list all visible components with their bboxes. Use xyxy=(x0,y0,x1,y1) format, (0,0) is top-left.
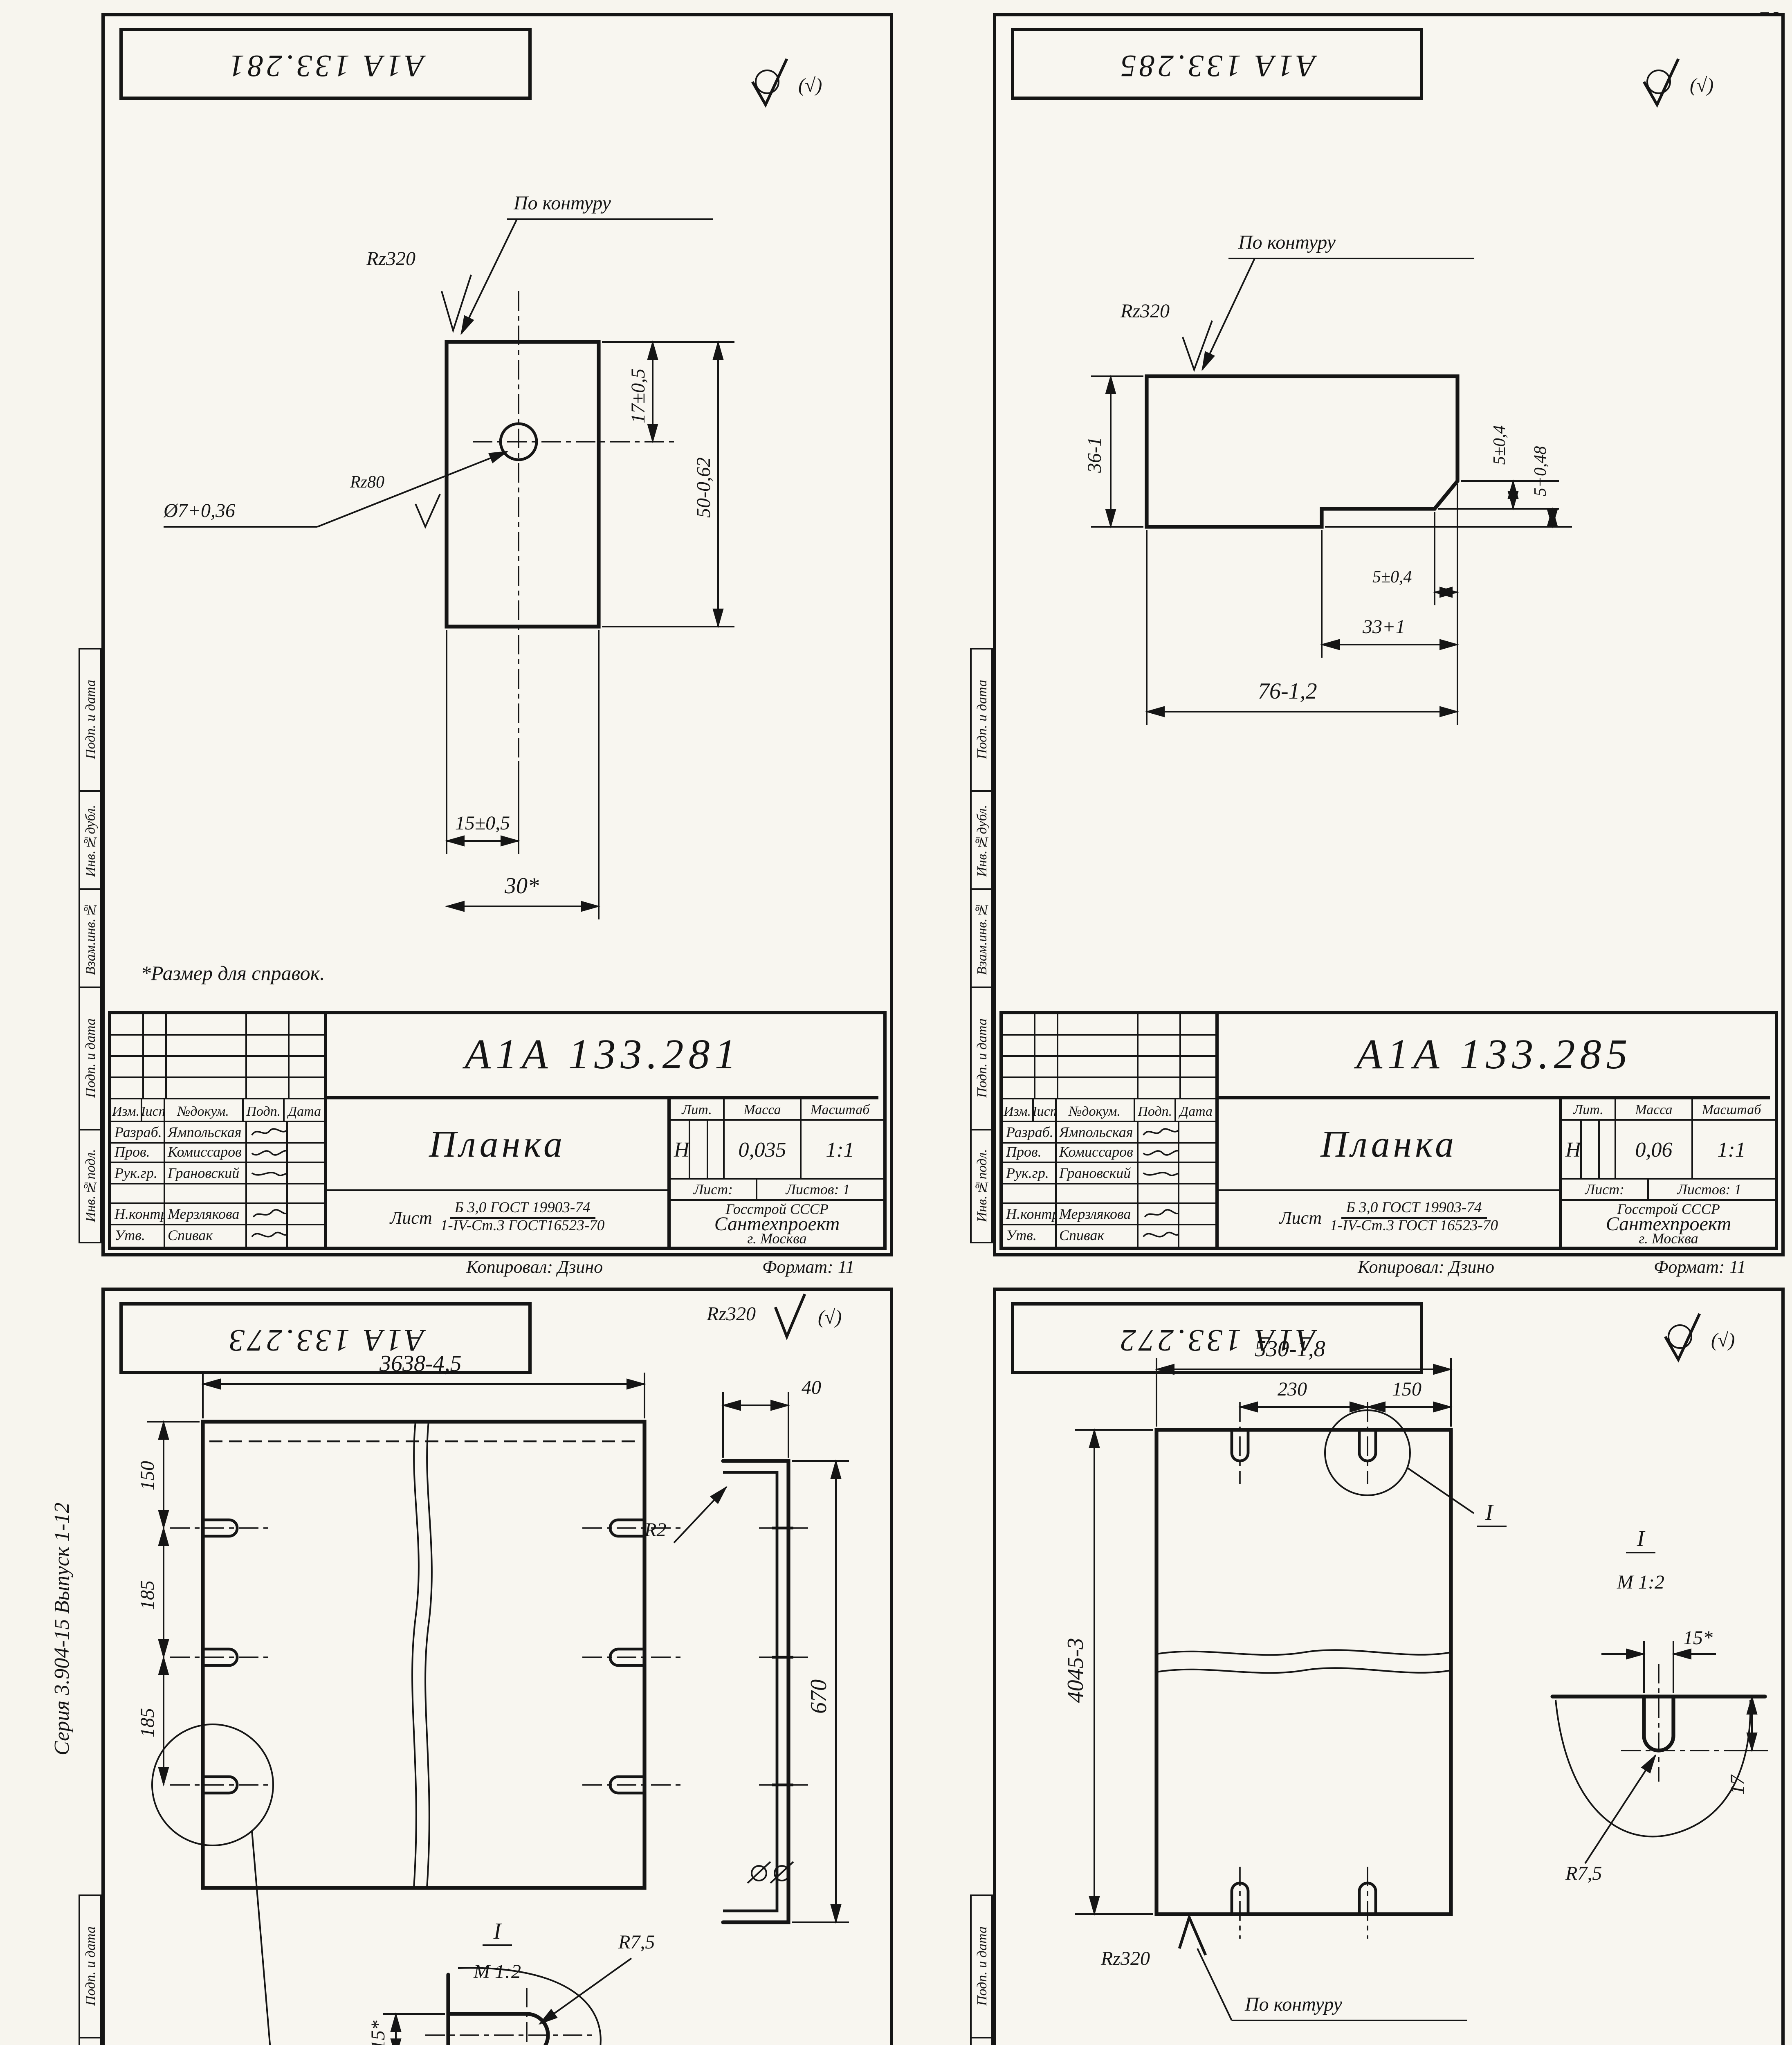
person-name: Комиссаров xyxy=(1056,1143,1138,1162)
margin-stamp-column: Подп. и дата Инв.№дубл. Взам.инв.№ Подп.… xyxy=(79,1898,101,2045)
side-view-channel xyxy=(723,1461,808,1922)
finish-paren-label: (√) xyxy=(798,74,822,96)
organization: Госстрой СССР Сантехпроект г. Москва xyxy=(671,1201,883,1245)
format-label: Формат: 11 xyxy=(1654,1258,1746,1278)
doc-number: А1А 133.281 xyxy=(327,1014,878,1099)
check-icon xyxy=(415,494,440,527)
role-label: Пров. xyxy=(1003,1143,1056,1162)
check-icon xyxy=(1183,321,1212,370)
revision-and-staff-table: Изм. Лист №докум. Подп. Дата Разраб.Ямпо… xyxy=(1003,1014,1219,1247)
signature xyxy=(1138,1205,1180,1224)
dim-5v-label: 5±0,4 xyxy=(1490,425,1509,465)
revision-grid xyxy=(1003,1014,1215,1099)
margin-cell: Инв.№дубл. xyxy=(970,790,993,891)
margin-cell: Взам.инв.№ xyxy=(970,888,993,990)
mass-value: 0,035 xyxy=(725,1121,802,1178)
org-line-2: Сантехпроект xyxy=(1562,1216,1775,1232)
drawing-view-planka-285: (√) По контуру Rz320 36-1 5±0,4 5+0,48 xyxy=(996,16,1780,1022)
organization: Госстрой СССР Сантехпроект г. Москва xyxy=(1562,1201,1775,1245)
break-line xyxy=(425,1422,432,1888)
plate-outline xyxy=(1147,376,1457,527)
margin-cell: Подп. и дата xyxy=(79,987,101,1131)
radius-r2-label: R2 xyxy=(644,1519,666,1541)
drawing-view-list-272: (√) 530-1,8 230 150 xyxy=(996,1291,1780,2045)
col-data: Дата xyxy=(1177,1099,1216,1121)
revision-and-staff-table: Изм. Лист №докум. Подп. Дата Разраб.Ямпо… xyxy=(111,1014,327,1247)
slots-left xyxy=(203,1520,237,1793)
margin-stamp-column: Подп. и дата Инв.№дубл. Взам.инв.№ Подп.… xyxy=(970,1898,993,2045)
dim-76-label: 76-1,2 xyxy=(1258,679,1317,704)
dim-15-label: 15* xyxy=(367,2020,389,2045)
dim-5n-label: 5+0,48 xyxy=(1531,446,1550,497)
dim-17-label: 17±0,5 xyxy=(627,369,649,423)
margin-cell: Инв.№дубл. xyxy=(79,790,101,891)
surface-finish-any-icon xyxy=(1665,1314,1700,1360)
role-label: Рук.гр. xyxy=(111,1164,164,1182)
slots-right xyxy=(610,1520,644,1793)
mass-header: Масса xyxy=(1616,1099,1693,1119)
scale-header: Масштаб xyxy=(1693,1099,1770,1119)
dim-3638-label: 3638-4,5 xyxy=(379,1351,462,1376)
break-line xyxy=(1156,1650,1451,1655)
mass-header: Масса xyxy=(725,1099,802,1119)
roughness-rz320-label: Rz320 xyxy=(706,1303,756,1325)
sheet-label: Лист: xyxy=(671,1180,757,1199)
material-prefix: Лист xyxy=(390,1209,432,1229)
series-label: Серия 3.904-15 Выпуск 1-12 xyxy=(46,1384,79,1875)
signature xyxy=(247,1122,289,1141)
margin-cell: Взам.инв.№ xyxy=(79,888,101,990)
margin-cell: Инв.№подл. xyxy=(970,1128,993,1243)
sheets-label: Листов: 1 xyxy=(1649,1180,1770,1199)
dim-30-label: 30* xyxy=(504,873,539,899)
person-name: Грановский xyxy=(164,1164,247,1182)
hole-dia-label: Ø7+0,36 xyxy=(163,500,235,521)
finish-paren-label: (√) xyxy=(1690,74,1713,96)
role-label: Разраб. xyxy=(111,1122,164,1141)
role-label: Утв. xyxy=(111,1225,164,1246)
dim-36-label: 36-1 xyxy=(1084,437,1105,473)
margin-stamp-column: Подп. и дата Инв.№дубл. Взам.инв.№ Подп.… xyxy=(79,651,101,1243)
roughness-rz320-label: Rz320 xyxy=(1120,300,1170,322)
org-line-2: Сантехпроект xyxy=(671,1216,883,1232)
margin-cell: Подп. и дата xyxy=(970,1895,993,2039)
drawing-view-dnishche-273: Rz320 (√) 3638-4,5 xyxy=(105,1291,888,2045)
revision-header-row: Изм. Лист №докум. Подп. Дата xyxy=(111,1099,324,1122)
lit-value: Н xyxy=(674,1136,689,1162)
margin-cell: Инв.№дубл. xyxy=(970,2036,993,2045)
col-podp: Подп. xyxy=(1135,1099,1177,1121)
doc-number: А1А 133.285 xyxy=(1219,1014,1770,1099)
role-label: Утв. xyxy=(1003,1225,1056,1246)
person-name: Грановский xyxy=(1056,1164,1138,1182)
col-list: Лист xyxy=(142,1099,164,1121)
dim-150-label: 150 xyxy=(1392,1378,1421,1400)
dim-33-label: 33+1 xyxy=(1362,616,1405,638)
reference-note: *Размер для справок. xyxy=(141,962,325,987)
roughness-rz320-label: Rz320 xyxy=(366,248,415,270)
dim-17-label: 17 xyxy=(1727,1774,1748,1795)
title-block: Изм. Лист №докум. Подп. Дата Разраб.Ямпо… xyxy=(108,1011,887,1250)
sheet-a1a-133-272: А1А 133.272 (√) 530-1,8 230 150 xyxy=(993,1288,1785,2045)
dim-40-label: 40 xyxy=(802,1377,821,1398)
roughness-rz320-label: Rz320 xyxy=(1100,1948,1150,1969)
sheet-a1a-133-285: А1А 133.285 (√) По контуру Rz320 36-1 xyxy=(993,13,1785,1256)
dim-185a-label: 185 xyxy=(137,1580,158,1610)
contour-label: По контуру xyxy=(1238,231,1336,253)
col-podp: Подп. xyxy=(243,1099,285,1121)
material-bottom: 1-IV-Ст.3 ГОСТ16523-70 xyxy=(440,1219,605,1235)
org-line-3: г. Москва xyxy=(671,1232,883,1246)
col-list: Лист xyxy=(1033,1099,1056,1121)
col-dokum: №докум. xyxy=(1056,1099,1135,1121)
slots-bottom xyxy=(1232,1883,1376,1914)
part-name: Планка xyxy=(1219,1099,1559,1191)
col-data: Дата xyxy=(285,1099,324,1121)
dim-185b-label: 185 xyxy=(137,1708,158,1737)
surface-finish-any-icon xyxy=(1644,59,1678,105)
panel-outline xyxy=(203,1422,644,1888)
margin-cell: Инв.№подл. xyxy=(79,1128,101,1243)
signature xyxy=(1138,1164,1180,1182)
role-label: Н.контр. xyxy=(111,1205,164,1224)
role-label: Н.контр. xyxy=(1003,1205,1056,1224)
margin-cell: Подп. и дата xyxy=(79,1895,101,2039)
copied-by: Копировал: Дзино xyxy=(466,1258,603,1278)
surface-finish-any-icon xyxy=(752,59,787,105)
detail-title: I xyxy=(1637,1526,1646,1551)
person-name: Ямпольская xyxy=(1056,1122,1138,1141)
dim-50-label: 50-0,62 xyxy=(693,457,714,518)
detail-title: I xyxy=(493,1919,502,1944)
check-icon xyxy=(1179,1917,1206,1955)
contour-label: По контуру xyxy=(1244,1993,1343,2015)
material-spec: Лист Б 3,0 ГОСТ 19903-741-IV-Ст.3 ГОСТ 1… xyxy=(1219,1191,1559,1247)
dim-15-label: 15±0,5 xyxy=(455,812,510,834)
scale-header: Масштаб xyxy=(802,1099,878,1119)
role-label: Разраб. xyxy=(1003,1122,1056,1141)
dim-150-label: 150 xyxy=(137,1461,158,1490)
material-bottom: 1-IV-Ст.3 ГОСТ 16523-70 xyxy=(1330,1219,1498,1235)
plate-outline xyxy=(447,342,599,627)
signature xyxy=(247,1205,289,1224)
person-name: Спивак xyxy=(164,1225,247,1246)
dim-670-label: 670 xyxy=(806,1679,831,1714)
margin-cell: Подп. и дата xyxy=(970,648,993,792)
person-name: Мерзлякова xyxy=(164,1205,247,1224)
margin-cell: Подп. и дата xyxy=(970,987,993,1131)
break-line xyxy=(412,1422,419,1888)
detail-scale: М 1:2 xyxy=(1617,1571,1664,1593)
check-icon xyxy=(775,1294,805,1337)
lit-value: Н xyxy=(1565,1136,1581,1162)
person-name: Мерзлякова xyxy=(1056,1205,1138,1224)
signature xyxy=(1138,1143,1180,1162)
dim-4045-label: 4045-3 xyxy=(1063,1638,1088,1703)
material-prefix: Лист xyxy=(1280,1209,1322,1229)
finish-paren-label: (√) xyxy=(818,1306,842,1328)
finish-paren-label: (√) xyxy=(1711,1329,1735,1351)
margin-stamp-column: Подп. и дата Инв.№дубл. Взам.инв.№ Подп.… xyxy=(970,651,993,1243)
scanned-drawing-sheet: 76 Серия 3.904-15 Выпуск 1-12 А1А 133.28… xyxy=(0,0,1792,2045)
margin-cell: Инв.№дубл. xyxy=(79,2036,101,2045)
format-label: Формат: 11 xyxy=(762,1258,854,1278)
material-top: Б 3,0 ГОСТ 19903-74 xyxy=(1341,1200,1487,1218)
detail-ref-label: I xyxy=(1485,1500,1494,1525)
material-spec: Лист Б 3,0 ГОСТ 19903-741-IV-Ст.3 ГОСТ16… xyxy=(327,1191,667,1247)
col-dokum: №докум. xyxy=(164,1099,243,1121)
signature xyxy=(1138,1122,1180,1141)
org-line-3: г. Москва xyxy=(1562,1232,1775,1246)
person-name: Комиссаров xyxy=(164,1143,247,1162)
sheet-a1a-133-281: А1А 133.281 (√) По контуру Rz320 Ø7+0,36 xyxy=(101,13,893,1256)
col-izm: Изм. xyxy=(1003,1099,1033,1121)
dim-230-label: 230 xyxy=(1278,1378,1307,1400)
part-name: Планка xyxy=(327,1099,667,1191)
copied-by: Копировал: Дзино xyxy=(1358,1258,1494,1278)
scale-value: 1:1 xyxy=(1693,1121,1770,1178)
col-izm: Изм. xyxy=(111,1099,142,1121)
role-label: Рук.гр. xyxy=(1003,1164,1056,1182)
scale-value: 1:1 xyxy=(802,1121,878,1178)
person-name: Спивак xyxy=(1056,1225,1138,1246)
material-top: Б 3,0 ГОСТ 19903-74 xyxy=(450,1200,595,1218)
margin-cell: Подп. и дата xyxy=(79,648,101,792)
dim-530-label: 530-1,8 xyxy=(1255,1336,1325,1362)
signature xyxy=(1138,1225,1180,1246)
sheets-label: Листов: 1 xyxy=(757,1180,878,1199)
contour-label: По контуру xyxy=(513,192,611,214)
signature xyxy=(247,1164,289,1182)
title-block: Изм. Лист №докум. Подп. Дата Разраб.Ямпо… xyxy=(999,1011,1778,1250)
sheet-label: Лист: xyxy=(1562,1180,1649,1199)
dim-15-label: 15* xyxy=(1683,1627,1713,1649)
radius-r75-label: R7,5 xyxy=(1565,1863,1602,1884)
slots-top xyxy=(1232,1430,1376,1461)
drawing-view-planka-281: (√) По контуру Rz320 Ø7+0,36 Rz80 17±0,5 xyxy=(105,16,888,1022)
lit-header: Лит. xyxy=(671,1099,725,1119)
roughness-rz80-label: Rz80 xyxy=(350,473,384,492)
role-label: Пров. xyxy=(111,1143,164,1162)
radius-r75-label: R7,5 xyxy=(618,1931,655,1953)
break-line xyxy=(1156,1668,1451,1673)
mass-value: 0,06 xyxy=(1616,1121,1693,1178)
page-canvas: 76 Серия 3.904-15 Выпуск 1-12 А1А 133.28… xyxy=(0,0,1792,2045)
lit-header: Лит. xyxy=(1562,1099,1616,1119)
detail-scale: М 1:2 xyxy=(473,1961,521,1982)
grind-mark-icon xyxy=(748,1862,793,1883)
sheet-a1a-133-273: А1А 133.273 Rz320 (√) 3638-4,5 xyxy=(101,1288,893,2045)
dim-5h-label: 5±0,4 xyxy=(1372,568,1412,587)
signature xyxy=(247,1225,289,1246)
signature xyxy=(247,1143,289,1162)
revision-grid xyxy=(111,1014,324,1099)
person-name: Ямпольская xyxy=(164,1122,247,1141)
